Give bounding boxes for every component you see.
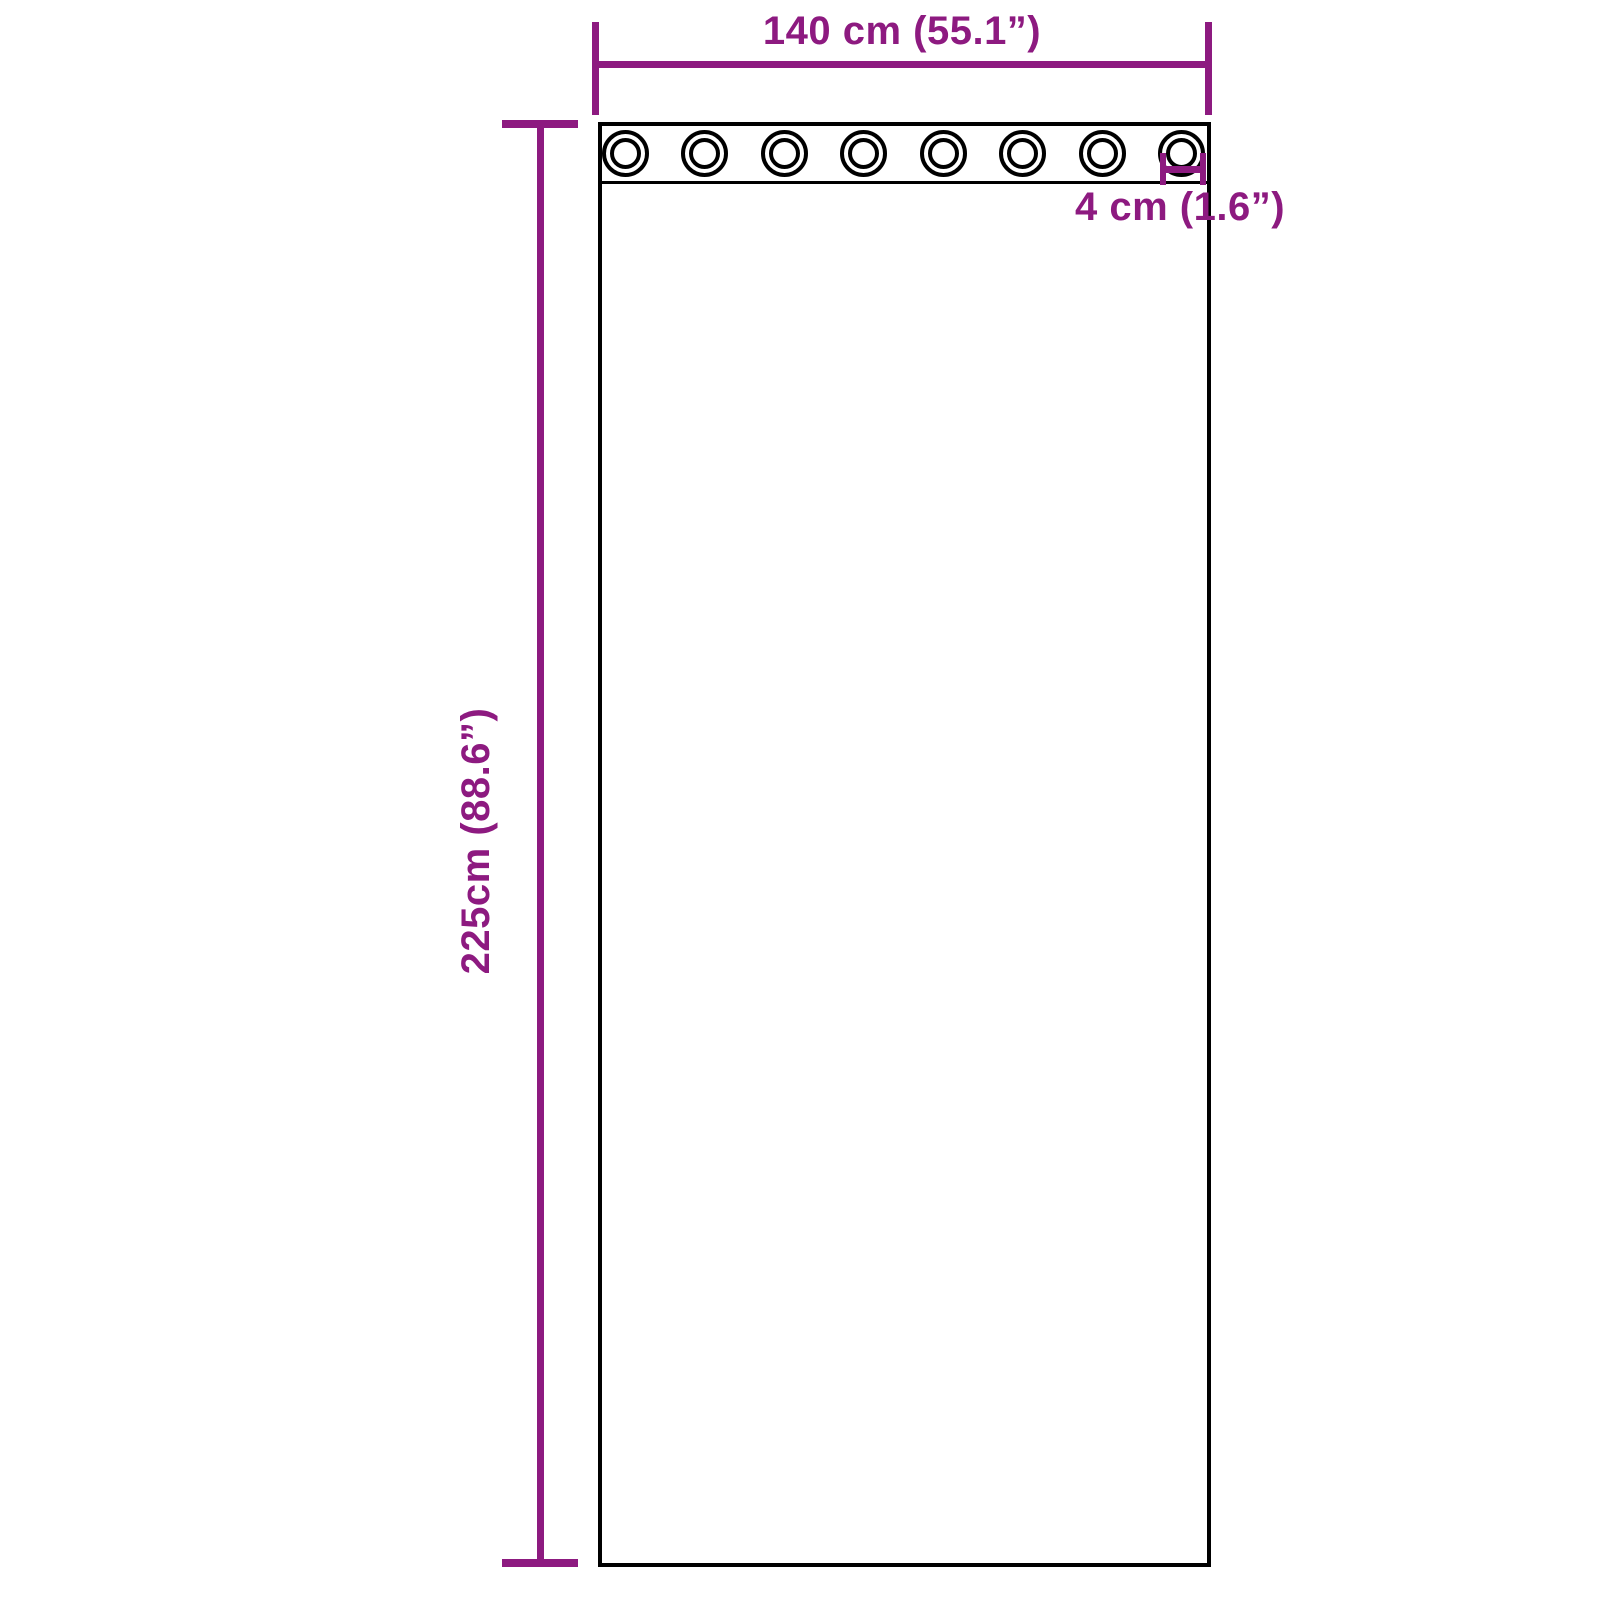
grommet-dimension-line <box>1160 153 1206 185</box>
width-dimension-right-tick <box>1205 22 1212 115</box>
grommet-icon <box>999 130 1046 177</box>
diagram-canvas: 140 cm (55.1”) 225cm (88.6”) 4 cm (1.6”) <box>0 0 1600 1600</box>
grommet-icon <box>840 130 887 177</box>
grommet-icon <box>920 130 967 177</box>
grommet-inner-ring-icon <box>848 138 879 169</box>
grommet-dimension-right-tick <box>1200 153 1206 185</box>
height-dimension-bar <box>537 120 544 1567</box>
width-dimension-line <box>592 22 1212 115</box>
grommet-band <box>602 126 1207 184</box>
grommet-inner-ring-icon <box>689 138 720 169</box>
grommet-inner-ring-icon <box>1087 138 1118 169</box>
curtain-panel-outline <box>598 122 1211 1567</box>
grommet-inner-ring-icon <box>928 138 959 169</box>
grommet-icon <box>602 130 649 177</box>
width-dimension-left-tick <box>592 22 599 115</box>
height-dimension-label: 225cm (88.6”) <box>453 541 499 1141</box>
grommet-icon <box>681 130 728 177</box>
height-dimension-bottom-cap <box>502 1559 578 1567</box>
grommet-icon <box>761 130 808 177</box>
grommet-inner-ring-icon <box>610 138 641 169</box>
grommet-dimension-label: 4 cm (1.6”) <box>1030 184 1330 230</box>
grommet-icon <box>1079 130 1126 177</box>
grommet-inner-ring-icon <box>769 138 800 169</box>
grommet-inner-ring-icon <box>1007 138 1038 169</box>
width-dimension-bar <box>592 61 1212 68</box>
height-dimension-line <box>502 120 578 1567</box>
